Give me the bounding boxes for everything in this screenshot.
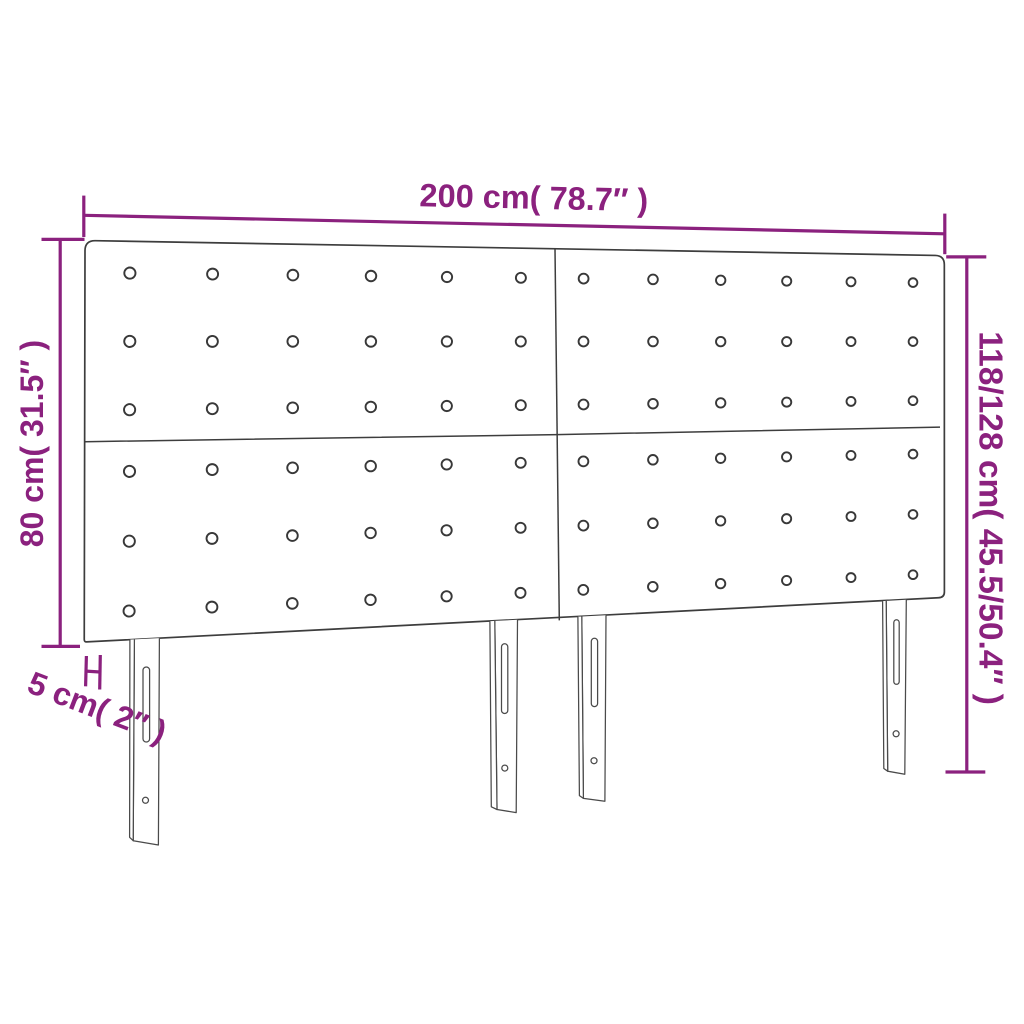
svg-text:118/128 cm( 45.5/50.4″ ): 118/128 cm( 45.5/50.4″ ) — [972, 331, 1009, 705]
svg-text:200 cm( 78.7″ ): 200 cm( 78.7″ ) — [419, 177, 648, 218]
svg-text:80 cm( 31.5″ ): 80 cm( 31.5″ ) — [14, 340, 50, 547]
